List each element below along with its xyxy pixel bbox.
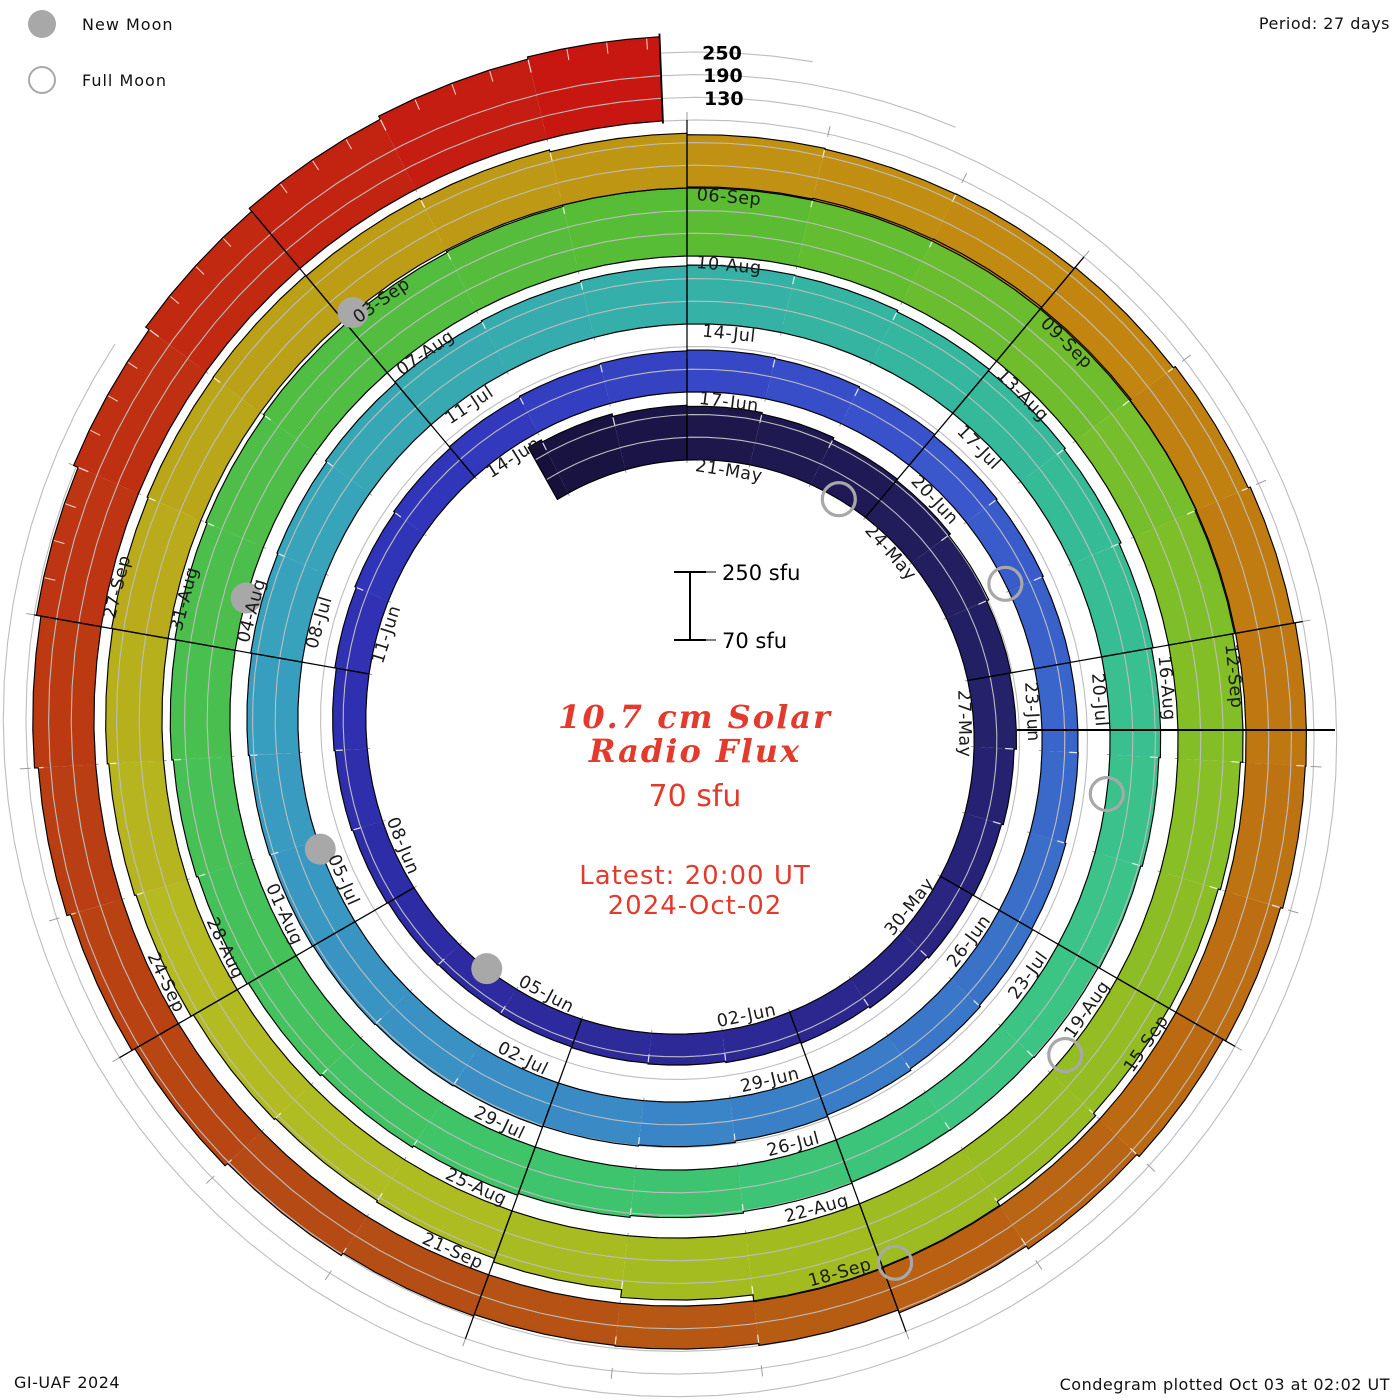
- chart-title-line2: Radio Flux: [588, 732, 801, 770]
- chart-title-line1: 10.7 cm Solar: [558, 698, 832, 736]
- svg-text:250: 250: [702, 43, 742, 65]
- latest-time-label: Latest: 20:00 UT: [579, 861, 810, 891]
- full-moon-icon: [28, 66, 56, 94]
- svg-text:190: 190: [703, 65, 743, 87]
- scale-bar-top-label: 250 sfu: [722, 561, 800, 585]
- chart-subtitle-units: 70 sfu: [649, 779, 742, 814]
- svg-text:14-Jul: 14-Jul: [701, 321, 756, 347]
- plotted-timestamp: Condegram plotted Oct 03 at 02:02 UT: [1060, 1375, 1390, 1394]
- latest-date-label: 2024-Oct-02: [608, 891, 783, 921]
- credit-left: GI-UAF 2024: [14, 1373, 120, 1392]
- spiral-plot: 21-May24-May27-May30-May02-Jun05-Jun08-J…: [0, 0, 1400, 1400]
- radial-axis: 130190250: [702, 43, 743, 110]
- new-moon-icon: [28, 10, 56, 38]
- svg-text:20-Jul: 20-Jul: [1087, 672, 1111, 727]
- flux-band-segments: [33, 37, 1307, 1349]
- scale-bar-bottom-label: 70 sfu: [722, 629, 787, 653]
- legend-new-moon: New Moon: [28, 4, 174, 44]
- new-moon-label: New Moon: [82, 15, 174, 34]
- flux-scale-bar: [674, 572, 716, 640]
- condegram-stage: 21-May24-May27-May30-May02-Jun05-Jun08-J…: [0, 0, 1400, 1400]
- svg-text:23-Jun: 23-Jun: [1020, 681, 1043, 742]
- moon-legend: New Moon Full Moon: [28, 4, 174, 116]
- svg-text:130: 130: [704, 88, 744, 110]
- full-moon-label: Full Moon: [82, 71, 167, 90]
- svg-text:27-May: 27-May: [953, 690, 975, 758]
- center-annotations: 250 sfu 70 sfu 10.7 cm Solar Radio Flux …: [558, 561, 832, 921]
- period-label: Period: 27 days: [1259, 14, 1390, 33]
- legend-full-moon: Full Moon: [28, 60, 174, 100]
